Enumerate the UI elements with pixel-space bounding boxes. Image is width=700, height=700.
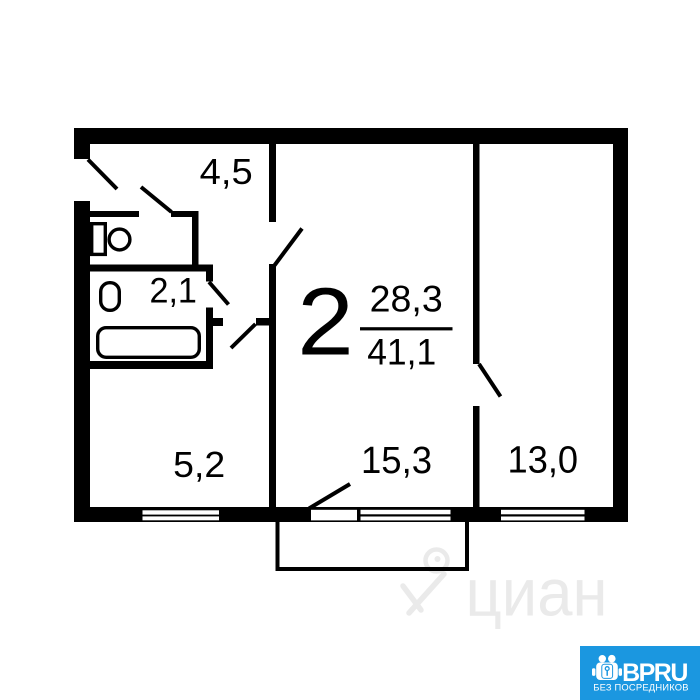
svg-text:28,3: 28,3 bbox=[370, 279, 443, 320]
svg-text:41,1: 41,1 bbox=[367, 332, 436, 373]
svg-text:циан: циан bbox=[466, 556, 608, 631]
svg-text:13,0: 13,0 bbox=[508, 439, 579, 481]
svg-text:БЕЗ ПОСРЕДНИКОВ: БЕЗ ПОСРЕДНИКОВ bbox=[593, 682, 689, 693]
svg-text:2: 2 bbox=[297, 270, 354, 376]
svg-text:2,1: 2,1 bbox=[149, 271, 197, 310]
svg-text:15,3: 15,3 bbox=[361, 440, 432, 482]
svg-text:4,5: 4,5 bbox=[200, 151, 253, 192]
svg-text:5,2: 5,2 bbox=[173, 444, 225, 485]
